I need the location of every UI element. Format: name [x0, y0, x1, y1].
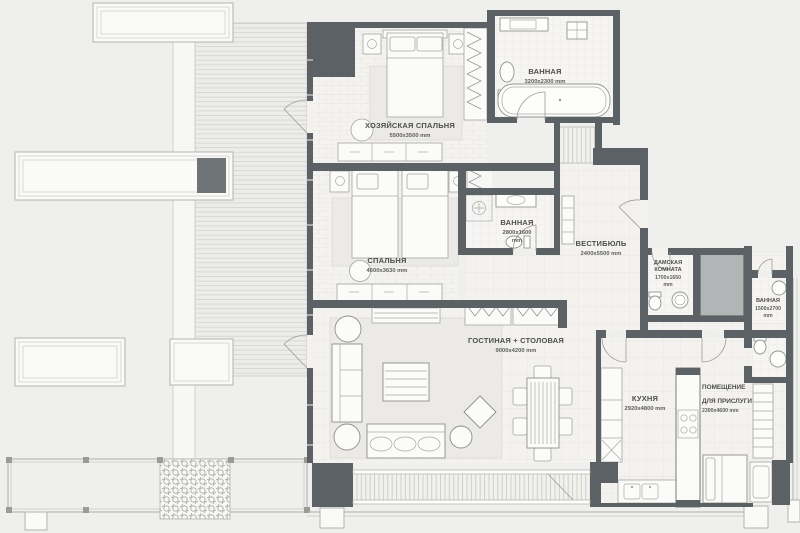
toilet-icon — [649, 292, 661, 310]
dresser-icon — [338, 143, 442, 161]
sink-icon — [770, 351, 786, 367]
corridor-floor — [752, 253, 786, 270]
kitchen-island-icon — [676, 368, 700, 507]
svg-text:СПАЛЬНЯ: СПАЛЬНЯ — [367, 256, 406, 265]
hall-floor — [640, 322, 786, 330]
staff-bed-icon — [703, 455, 747, 503]
coffee-table-icon — [383, 363, 429, 401]
vanity-icon — [496, 193, 536, 207]
living-room-window — [353, 470, 590, 504]
svg-text:ВЕСТИБЮЛЬ: ВЕСТИБЮЛЬ — [576, 239, 627, 248]
sink-icon — [500, 62, 514, 82]
kitchen-counter-icon — [601, 368, 622, 462]
armchair-icon — [334, 424, 360, 450]
pouf-icon — [450, 426, 472, 448]
svg-text:ПОМЕЩЕНИЕ: ПОМЕЩЕНИЕ — [702, 384, 746, 391]
svg-text:ВАННАЯ: ВАННАЯ — [756, 298, 780, 304]
sink-icon — [772, 281, 786, 295]
svg-text:2920x4800 mm: 2920x4800 mm — [625, 406, 666, 412]
svg-text:ДАМСКАЯ: ДАМСКАЯ — [654, 260, 682, 266]
column-base — [25, 512, 47, 530]
dresser-icon — [337, 284, 442, 301]
svg-text:9000x4200 mm: 9000x4200 mm — [496, 348, 537, 354]
dining-chair-icon — [558, 388, 572, 405]
wardrobe-icon — [464, 28, 487, 120]
sofa-icon — [332, 344, 362, 422]
dining-chair-icon — [513, 418, 527, 435]
sofa-icon — [367, 424, 445, 458]
cabinet-icon — [750, 462, 772, 502]
svg-text:2800x1600: 2800x1600 — [502, 230, 531, 236]
svg-text:ХОЗЯЙСКАЯ СПАЛЬНЯ: ХОЗЯЙСКАЯ СПАЛЬНЯ — [365, 121, 455, 130]
column-base — [744, 506, 768, 528]
svg-text:mm: mm — [663, 282, 673, 288]
vanity-icon — [500, 18, 548, 31]
dark-panel — [197, 158, 226, 193]
coat-closet-icon — [562, 196, 574, 244]
svg-text:1500x2700: 1500x2700 — [755, 306, 781, 312]
kitchen-sink-icon — [618, 480, 676, 503]
svg-text:ДЛЯ ПРИСЛУГИ: ДЛЯ ПРИСЛУГИ — [702, 398, 752, 405]
planter-box — [15, 152, 233, 200]
gravel-pad — [160, 459, 230, 519]
svg-text:mm: mm — [763, 313, 773, 319]
washer-icon — [567, 22, 587, 39]
planter-box — [170, 339, 233, 385]
svg-text:2300x4600 mm: 2300x4600 mm — [702, 408, 739, 414]
svg-text:ГОСТИНАЯ + СТОЛОВАЯ: ГОСТИНАЯ + СТОЛОВАЯ — [468, 336, 564, 345]
facade-pier — [312, 463, 353, 507]
master-bed-icon — [383, 30, 447, 117]
svg-text:1700x1650: 1700x1650 — [655, 275, 681, 281]
svg-text:4600x3630 mm: 4600x3630 mm — [367, 268, 408, 274]
toilet-icon — [754, 336, 766, 354]
planter-box — [15, 338, 125, 386]
dining-chair-icon — [534, 366, 551, 379]
svg-text:mm: mm — [512, 238, 522, 244]
svg-text:КУХНЯ: КУХНЯ — [632, 394, 658, 403]
terrace-walkway — [173, 23, 195, 460]
svg-text:ВАННАЯ: ВАННАЯ — [528, 67, 561, 76]
svg-text:3200x2300 mm: 3200x2300 mm — [525, 79, 566, 85]
armchair-icon — [335, 316, 361, 342]
svg-text:5500x3500 mm: 5500x3500 mm — [390, 133, 431, 139]
svg-text:2400x5500 mm: 2400x5500 mm — [581, 251, 622, 257]
floor-plan-drawing: ХОЗЯЙСКАЯ СПАЛЬНЯ 5500x3500 mm ВАННАЯ 32… — [0, 0, 800, 533]
dining-chair-icon — [513, 388, 527, 405]
storage-closet — [558, 127, 595, 163]
dining-chair-icon — [558, 418, 572, 435]
bathtub-icon — [498, 84, 610, 117]
svg-text:ВАННАЯ: ВАННАЯ — [500, 218, 533, 227]
sink-icon — [672, 292, 688, 308]
planter-box — [93, 3, 233, 42]
shelf-unit-icon — [753, 384, 773, 458]
elevator-shaft — [700, 253, 744, 316]
column-base — [320, 508, 344, 528]
svg-text:КОМНАТА: КОМНАТА — [654, 267, 681, 273]
facade-pier — [590, 483, 601, 507]
dining-chair-icon — [534, 448, 551, 461]
floor-plan-canvas: ХОЗЯЙСКАЯ СПАЛЬНЯ 5500x3500 mm ВАННАЯ 32… — [0, 0, 800, 533]
